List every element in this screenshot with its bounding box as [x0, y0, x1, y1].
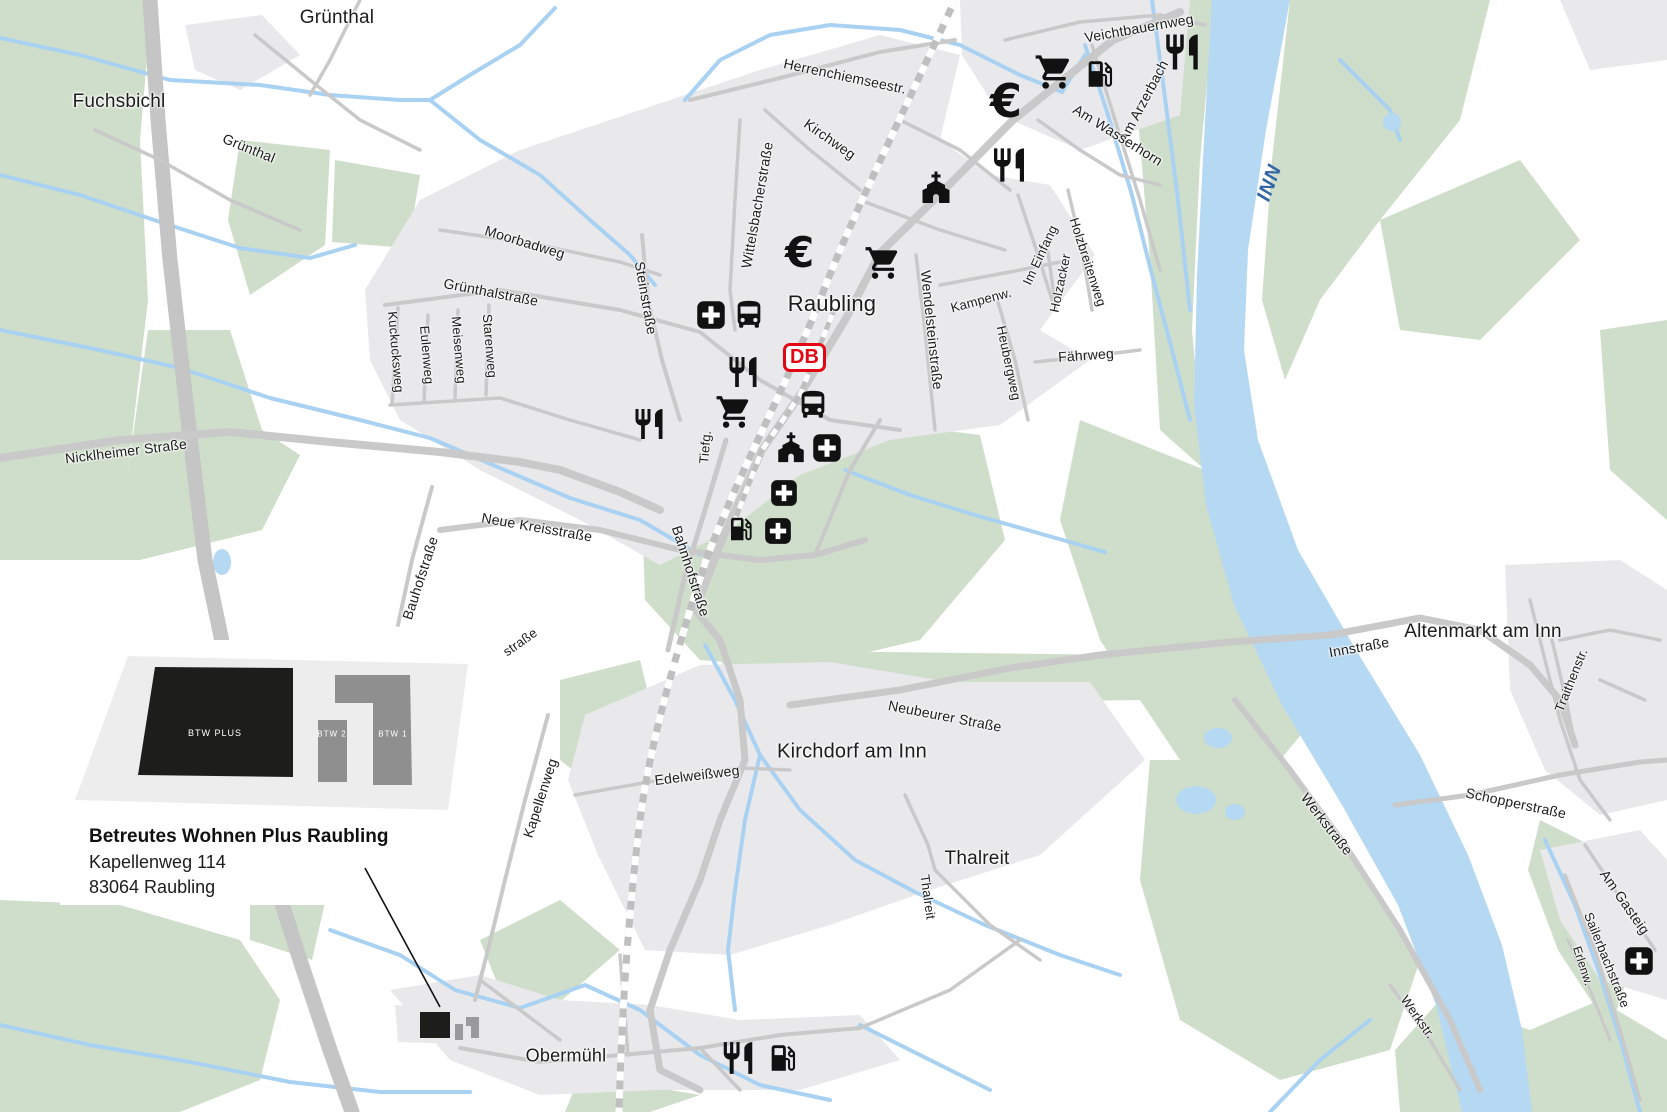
building-btw-plus	[138, 667, 293, 777]
euro-icon: €	[990, 78, 1036, 124]
church-icon	[774, 431, 808, 465]
restaurant-icon	[719, 1039, 757, 1077]
euro-icon: €	[785, 232, 827, 274]
fuel-icon	[726, 514, 756, 544]
restaurant-icon	[1161, 31, 1203, 73]
basemap-geography	[0, 0, 1667, 1112]
cart-icon	[1034, 52, 1074, 92]
db-station-logo: DB	[783, 343, 826, 372]
bus-icon	[796, 388, 830, 422]
cross-icon	[1624, 946, 1654, 976]
legend-box: BTW PLUS BTW 2 BTW 1 Betreutes Wohnen Pl…	[60, 640, 475, 905]
building-label-btw-1: BTW 1	[378, 730, 407, 739]
restaurant-icon	[989, 145, 1029, 185]
cross-icon	[764, 517, 792, 545]
euro-icon: €	[785, 232, 827, 274]
legend-address-street: Kapellenweg 114	[89, 852, 226, 873]
restaurant-icon	[631, 406, 667, 442]
map-canvas: GrünthalFuchsbichlRaublingKirchdorf am I…	[0, 0, 1667, 1112]
fuel-icon	[766, 1041, 800, 1075]
cross-icon	[696, 300, 726, 330]
legend-address-city: 83064 Raubling	[89, 877, 215, 898]
bus-icon	[732, 298, 766, 332]
cart-icon	[715, 393, 753, 431]
church-icon	[918, 170, 954, 206]
legend-title: Betreutes Wohnen Plus Raubling	[89, 826, 388, 848]
cross-icon	[812, 433, 842, 463]
euro-icon: €	[990, 78, 1036, 124]
restaurant-icon	[725, 354, 761, 390]
cart-icon	[864, 244, 902, 282]
fuel-icon	[1083, 57, 1117, 91]
building-label-btw-plus: BTW PLUS	[188, 728, 242, 738]
building-label-btw-2: BTW 2	[317, 730, 346, 739]
cross-icon	[770, 479, 798, 507]
